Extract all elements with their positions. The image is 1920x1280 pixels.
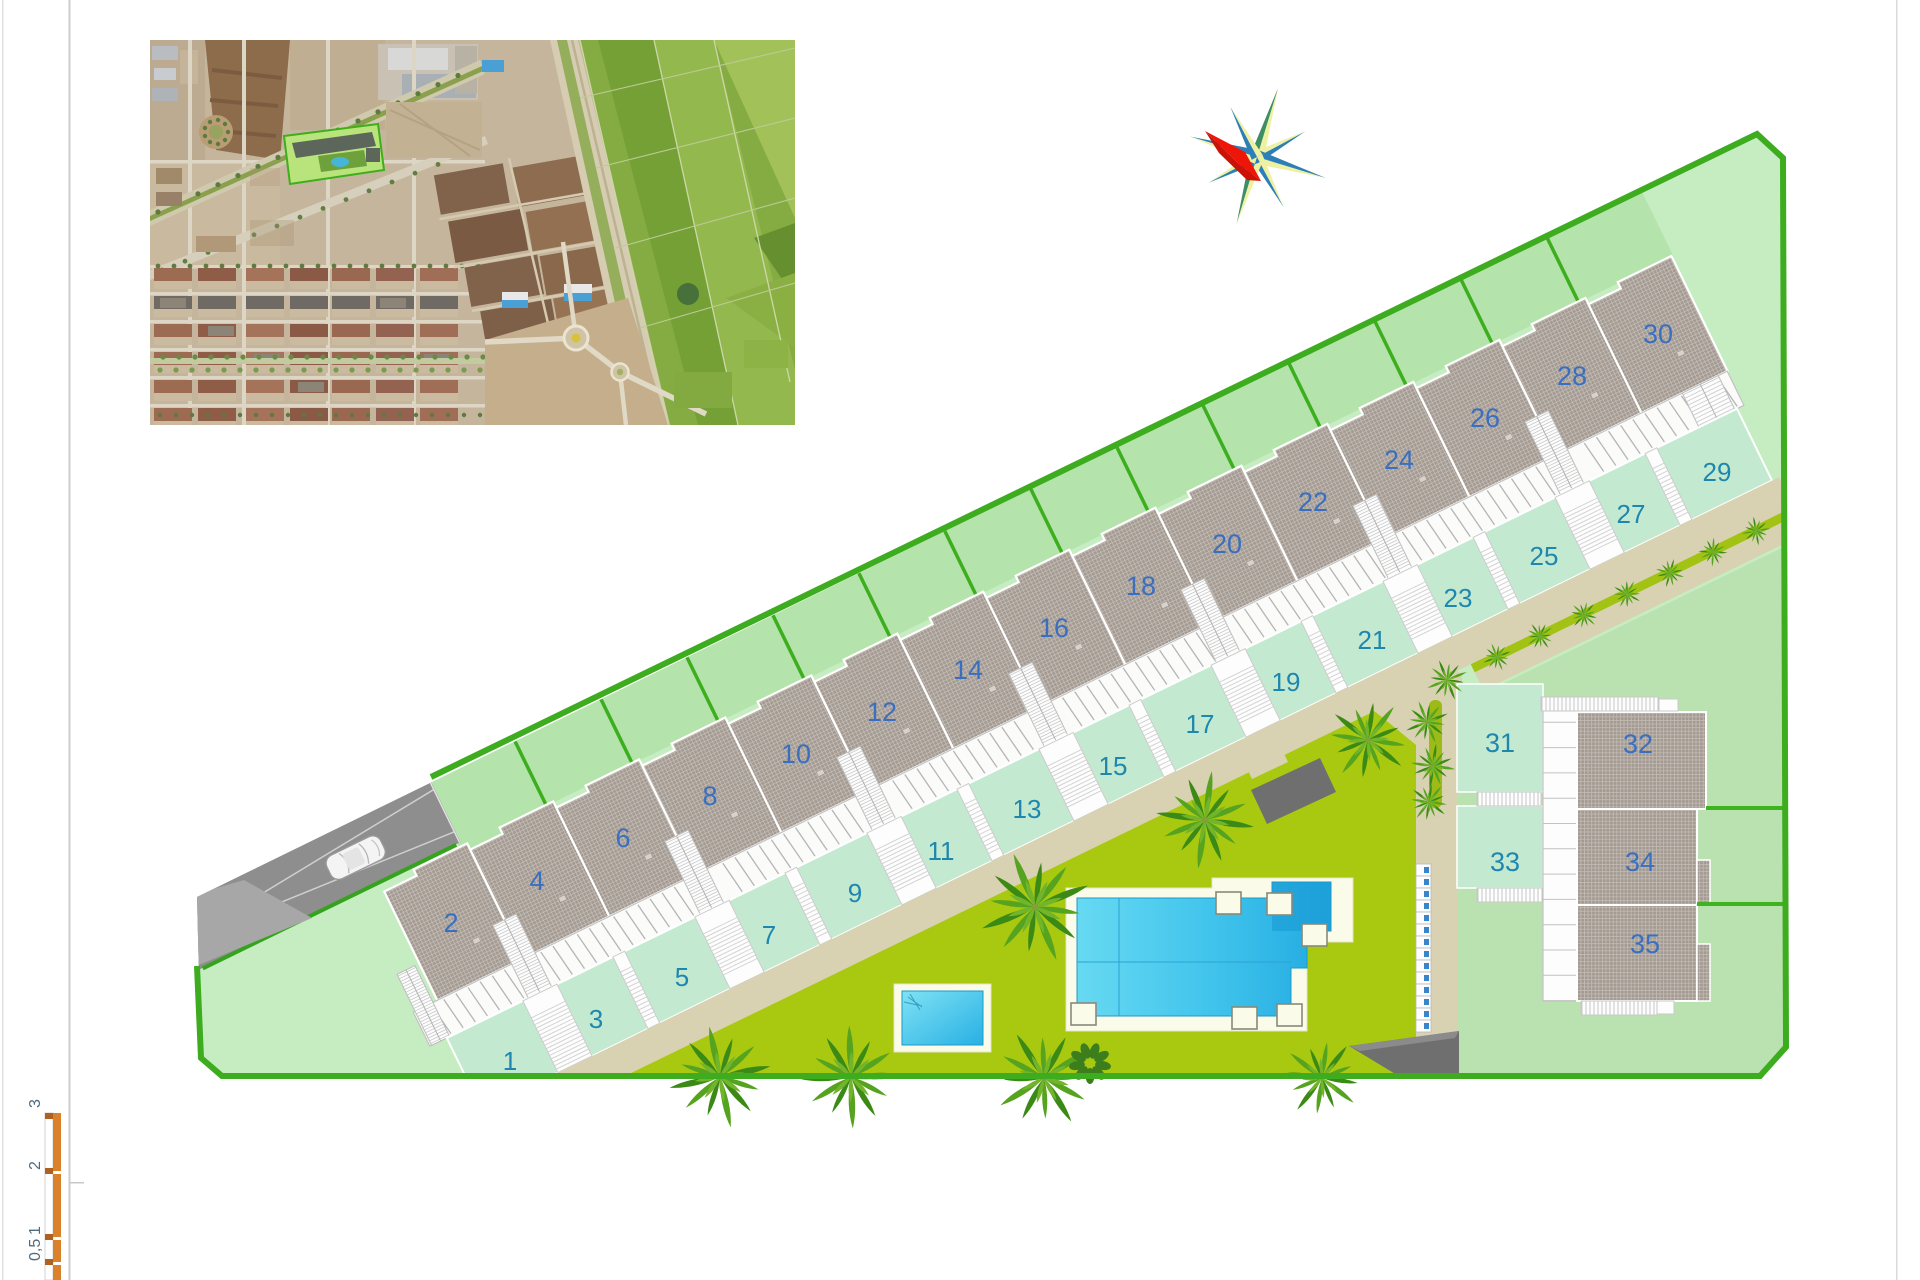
svg-text:0,5: 0,5: [27, 1239, 44, 1261]
svg-text:35: 35: [1630, 929, 1660, 959]
svg-text:16: 16: [1039, 613, 1069, 643]
svg-text:12: 12: [867, 697, 897, 727]
svg-text:7: 7: [762, 920, 776, 950]
svg-text:21: 21: [1358, 625, 1387, 655]
svg-text:29: 29: [1703, 457, 1732, 487]
svg-text:3: 3: [27, 1099, 44, 1108]
svg-text:4: 4: [529, 866, 544, 896]
svg-text:24: 24: [1384, 445, 1414, 475]
svg-text:1: 1: [503, 1046, 517, 1076]
svg-text:30: 30: [1643, 319, 1673, 349]
svg-text:8: 8: [702, 781, 717, 811]
svg-text:26: 26: [1470, 403, 1500, 433]
svg-text:10: 10: [781, 739, 811, 769]
svg-text:2: 2: [443, 908, 458, 938]
svg-text:32: 32: [1623, 729, 1653, 759]
svg-text:22: 22: [1298, 487, 1328, 517]
svg-text:23: 23: [1444, 583, 1473, 613]
svg-text:2: 2: [27, 1161, 44, 1170]
svg-text:14: 14: [953, 655, 983, 685]
svg-text:20: 20: [1212, 529, 1242, 559]
svg-text:5: 5: [675, 962, 689, 992]
svg-text:13: 13: [1013, 794, 1042, 824]
svg-text:15: 15: [1099, 751, 1128, 781]
svg-text:3: 3: [589, 1004, 603, 1034]
svg-text:1: 1: [27, 1226, 44, 1235]
svg-text:19: 19: [1272, 667, 1301, 697]
svg-text:33: 33: [1490, 847, 1520, 877]
svg-text:17: 17: [1186, 709, 1215, 739]
svg-text:18: 18: [1126, 571, 1156, 601]
svg-text:11: 11: [928, 836, 955, 866]
svg-text:34: 34: [1625, 847, 1655, 877]
svg-text:6: 6: [615, 823, 630, 853]
svg-text:9: 9: [848, 878, 862, 908]
svg-text:27: 27: [1617, 499, 1646, 529]
svg-text:25: 25: [1530, 541, 1559, 571]
svg-text:31: 31: [1485, 728, 1515, 758]
svg-text:28: 28: [1557, 361, 1587, 391]
